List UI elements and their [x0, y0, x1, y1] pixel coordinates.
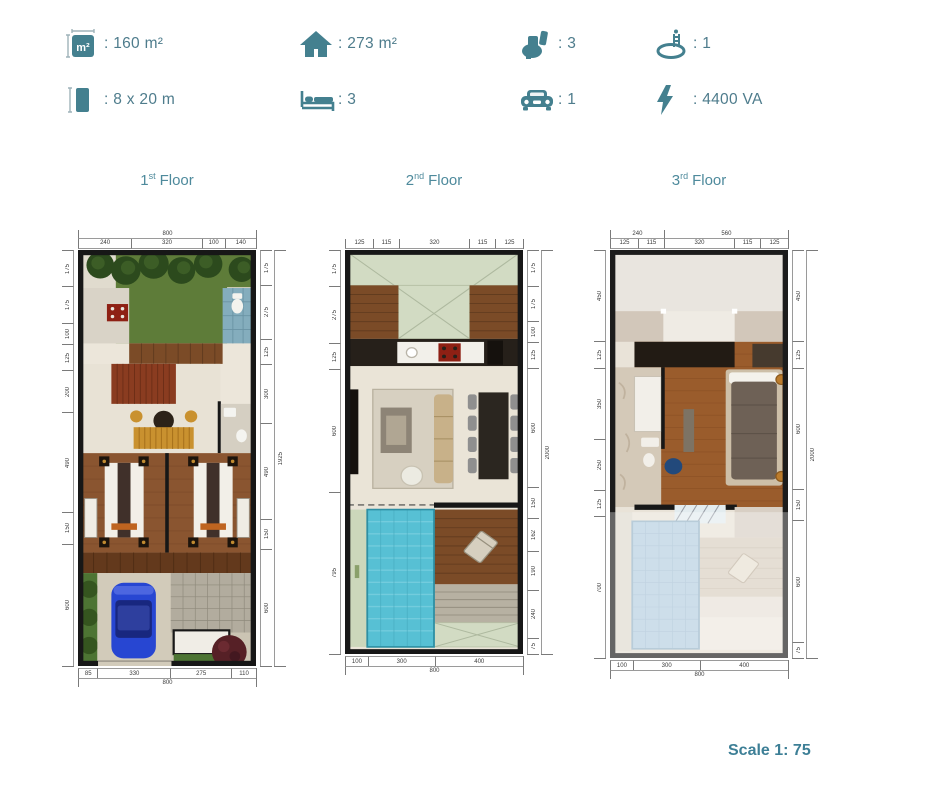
spec-building-area: : 273 m² — [298, 26, 397, 62]
floor1-bottom-dims: 85330275110 — [78, 668, 257, 678]
dimension-segment: 200 — [62, 370, 74, 412]
floor-1-plan-image — [78, 250, 256, 666]
dimension-segment: 490 — [62, 412, 74, 512]
dimension-segment: 800 — [610, 670, 788, 679]
dimension-segment: 700 — [594, 516, 606, 658]
dimension-segment: 190 — [527, 551, 539, 590]
floor1-top-dims: 240320100140 — [78, 239, 257, 249]
floor3-top-dims: 125115320115125 — [610, 239, 789, 249]
dimension-segment: 2000 — [806, 250, 818, 658]
floor-plan-2: 125115320115125 175275125600795 17517510… — [325, 226, 560, 696]
floor-2-label: 2ndFloor — [406, 172, 463, 189]
dimension-segment: 175 — [260, 250, 272, 285]
page: { "accent": "#44808f", "specs": [ {"name… — [0, 0, 940, 788]
car-icon — [518, 85, 558, 115]
floor1-top-total-dims: 800 — [78, 230, 257, 239]
dimension-segment: 125 — [62, 344, 74, 370]
floor3-top-total-dims: 240560 — [610, 230, 789, 239]
dimension-segment: 175 — [329, 250, 341, 286]
dimension-segment: 800 — [78, 230, 256, 239]
floor-plan-1: 800 240320100140 17517510012520049015060… — [58, 226, 293, 696]
dimension-segment: 600 — [329, 369, 341, 492]
spec-value: : 160 m² — [104, 35, 163, 53]
dimension-segment: 100 — [62, 323, 74, 344]
dimension-segment: 450 — [594, 250, 606, 341]
dimension-segment: 150 — [62, 512, 74, 543]
dimension-segment: 115 — [638, 239, 664, 249]
dimension-segment: 125 — [345, 239, 373, 249]
lightning-icon — [653, 83, 693, 117]
spec-power: : 4400 VA — [653, 82, 763, 118]
dimension-segment: 320 — [131, 239, 202, 249]
spec-pools: : 1 — [653, 26, 711, 62]
dimension-segment: 125 — [792, 341, 804, 367]
dimension-segment: 150 — [260, 519, 272, 549]
spec-value: : 1 — [693, 35, 711, 53]
dimension-segment: 560 — [664, 230, 788, 239]
dimension-segment: 320 — [399, 239, 469, 249]
dimension-segment: 300 — [260, 364, 272, 423]
dimension-segment: 795 — [329, 492, 341, 654]
spec-value: : 4400 VA — [693, 91, 763, 109]
dimension-segment: 600 — [792, 368, 804, 490]
floor1-bottom-total-dims: 800 — [78, 678, 257, 687]
dimension-segment: 110 — [231, 668, 256, 678]
dimension-segment: 600 — [62, 544, 74, 666]
dimension-segment: 150 — [792, 489, 804, 520]
dimension-segment: 240 — [610, 230, 664, 239]
dimension-segment: 125 — [527, 342, 539, 368]
floor2-right-total-dims: 2000 — [541, 250, 553, 655]
dimension-segment: 85 — [78, 668, 97, 678]
scale-label: Scale 1: 75 — [728, 742, 811, 760]
floor3-bottom-total-dims: 800 — [610, 670, 789, 679]
toilet-icon — [518, 27, 558, 61]
plot-dimension-icon — [64, 83, 104, 117]
floor3-right-total-dims: 2000 — [806, 250, 818, 659]
dimension-segment: 275 — [329, 286, 341, 343]
floor2-left-dims: 175275125600795 — [329, 250, 341, 655]
dimension-segment: 175 — [527, 250, 539, 286]
spec-carports: : 1 — [518, 82, 576, 118]
dimension-segment: 250 — [594, 439, 606, 490]
floor-2-plan-image — [345, 250, 523, 654]
dimension-segment: 300 — [633, 660, 700, 670]
pool-icon — [653, 27, 693, 61]
dimension-segment: 450 — [792, 250, 804, 341]
dimension-segment: 330 — [97, 668, 170, 678]
floor-3-label: 3rdFloor — [672, 172, 727, 189]
dimension-segment: 350 — [594, 368, 606, 439]
dimension-segment: 800 — [345, 666, 523, 675]
dimension-segment: 240 — [78, 239, 131, 249]
spec-value: : 1 — [558, 91, 576, 109]
dimension-segment: 400 — [700, 660, 789, 670]
dimension-segment: 125 — [760, 239, 788, 249]
dimension-segment: 320 — [664, 239, 734, 249]
svg-text:m²: m² — [76, 42, 90, 54]
spec-value: : 8 x 20 m — [104, 91, 175, 109]
dimension-segment: 600 — [260, 549, 272, 666]
dimension-segment: 240 — [527, 590, 539, 638]
dimension-segment: 115 — [373, 239, 399, 249]
dimension-segment: 115 — [734, 239, 760, 249]
car — [111, 583, 156, 659]
spec-value: : 3 — [338, 91, 356, 109]
spec-plot-size: : 8 x 20 m — [64, 82, 175, 118]
floor2-top-dims: 125115320115125 — [345, 239, 524, 249]
floor2-right-dims: 17517510012560015016219024075 — [527, 250, 539, 655]
spec-land-area: m² : 160 m² — [64, 26, 163, 62]
floor2-bottom-total-dims: 800 — [345, 666, 524, 675]
dimension-segment: 100 — [610, 660, 633, 670]
dimension-segment: 125 — [329, 343, 341, 369]
dimension-segment: 275 — [260, 285, 272, 339]
spec-toilets: : 3 — [518, 26, 576, 62]
dimension-segment: 115 — [469, 239, 495, 249]
dimension-segment: 600 — [527, 368, 539, 488]
floor1-right-dims: 175275125300490150600 — [260, 250, 272, 667]
dimension-segment: 1925 — [274, 250, 286, 666]
dimension-segment: 100 — [202, 239, 225, 249]
spec-value: : 3 — [558, 35, 576, 53]
dimension-segment: 800 — [78, 678, 256, 687]
spec-bedrooms: : 3 — [298, 82, 356, 118]
floor1-left-dims: 175175100125200490150600 — [62, 250, 74, 667]
house-icon — [298, 28, 338, 60]
floor-3-plan-image — [610, 250, 788, 658]
dimension-segment: 125 — [594, 341, 606, 367]
dimension-segment: 162 — [527, 518, 539, 551]
dimension-segment: 125 — [594, 490, 606, 516]
dimension-segment: 75 — [527, 638, 539, 654]
dimension-segment: 125 — [260, 339, 272, 364]
dimension-segment: 2000 — [541, 250, 553, 654]
area-icon: m² — [64, 27, 104, 61]
dimension-segment: 175 — [62, 286, 74, 322]
dimension-segment: 175 — [62, 250, 74, 286]
floor-1-label: 1stFloor — [140, 172, 194, 189]
floor3-right-dims: 45012560015060075 — [792, 250, 804, 659]
dimension-segment: 100 — [345, 656, 368, 666]
floor3-left-dims: 450125350250125700 — [594, 250, 606, 659]
dimension-segment: 175 — [527, 286, 539, 322]
dimension-segment: 150 — [527, 487, 539, 518]
dimension-segment: 300 — [368, 656, 435, 666]
dimension-segment: 100 — [527, 321, 539, 342]
dimension-segment: 275 — [170, 668, 231, 678]
floor2-bottom-dims: 100300400 — [345, 656, 524, 666]
spec-value: : 273 m² — [338, 35, 397, 53]
floor-plan-3: 240560 125115320115125 45012535025012570… — [590, 226, 825, 696]
floor3-bottom-dims: 100300400 — [610, 660, 789, 670]
floor1-right-total-dims: 1925 — [274, 250, 286, 667]
bed-icon — [298, 85, 338, 115]
dimension-segment: 125 — [495, 239, 523, 249]
dimension-segment: 75 — [792, 642, 804, 658]
dimension-segment: 125 — [610, 239, 638, 249]
dimension-segment: 140 — [225, 239, 256, 249]
dimension-segment: 400 — [435, 656, 524, 666]
dimension-segment: 600 — [792, 520, 804, 642]
dimension-segment: 490 — [260, 423, 272, 519]
